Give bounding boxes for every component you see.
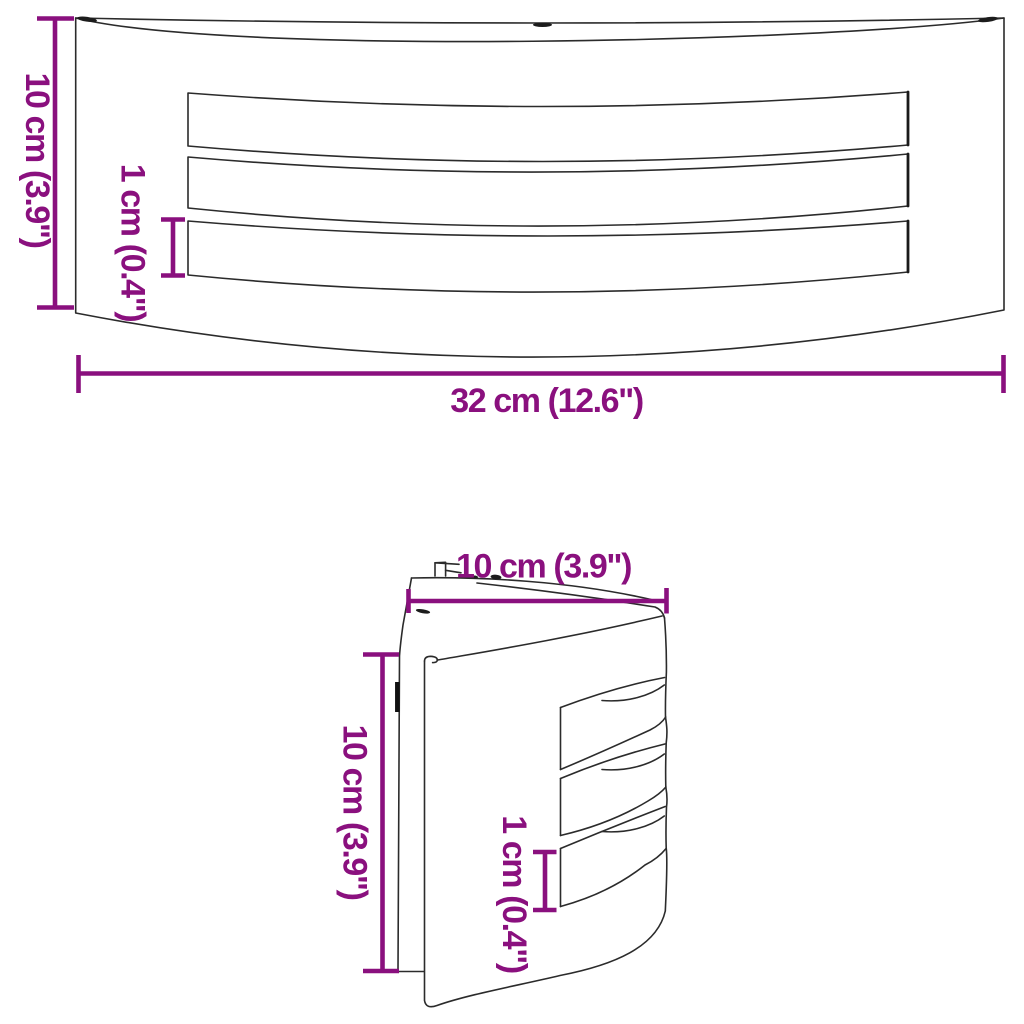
svg-text:10 cm (3.9"): 10 cm (3.9") [336,724,374,899]
svg-text:10 cm (3.9"): 10 cm (3.9") [456,548,631,586]
svg-text:10 cm (3.9"): 10 cm (3.9") [18,72,56,247]
svg-text:32 cm (12.6"): 32 cm (12.6") [450,382,643,420]
svg-text:1 cm (0.4"): 1 cm (0.4") [114,164,152,322]
svg-text:1 cm (0.4"): 1 cm (0.4") [495,815,533,973]
